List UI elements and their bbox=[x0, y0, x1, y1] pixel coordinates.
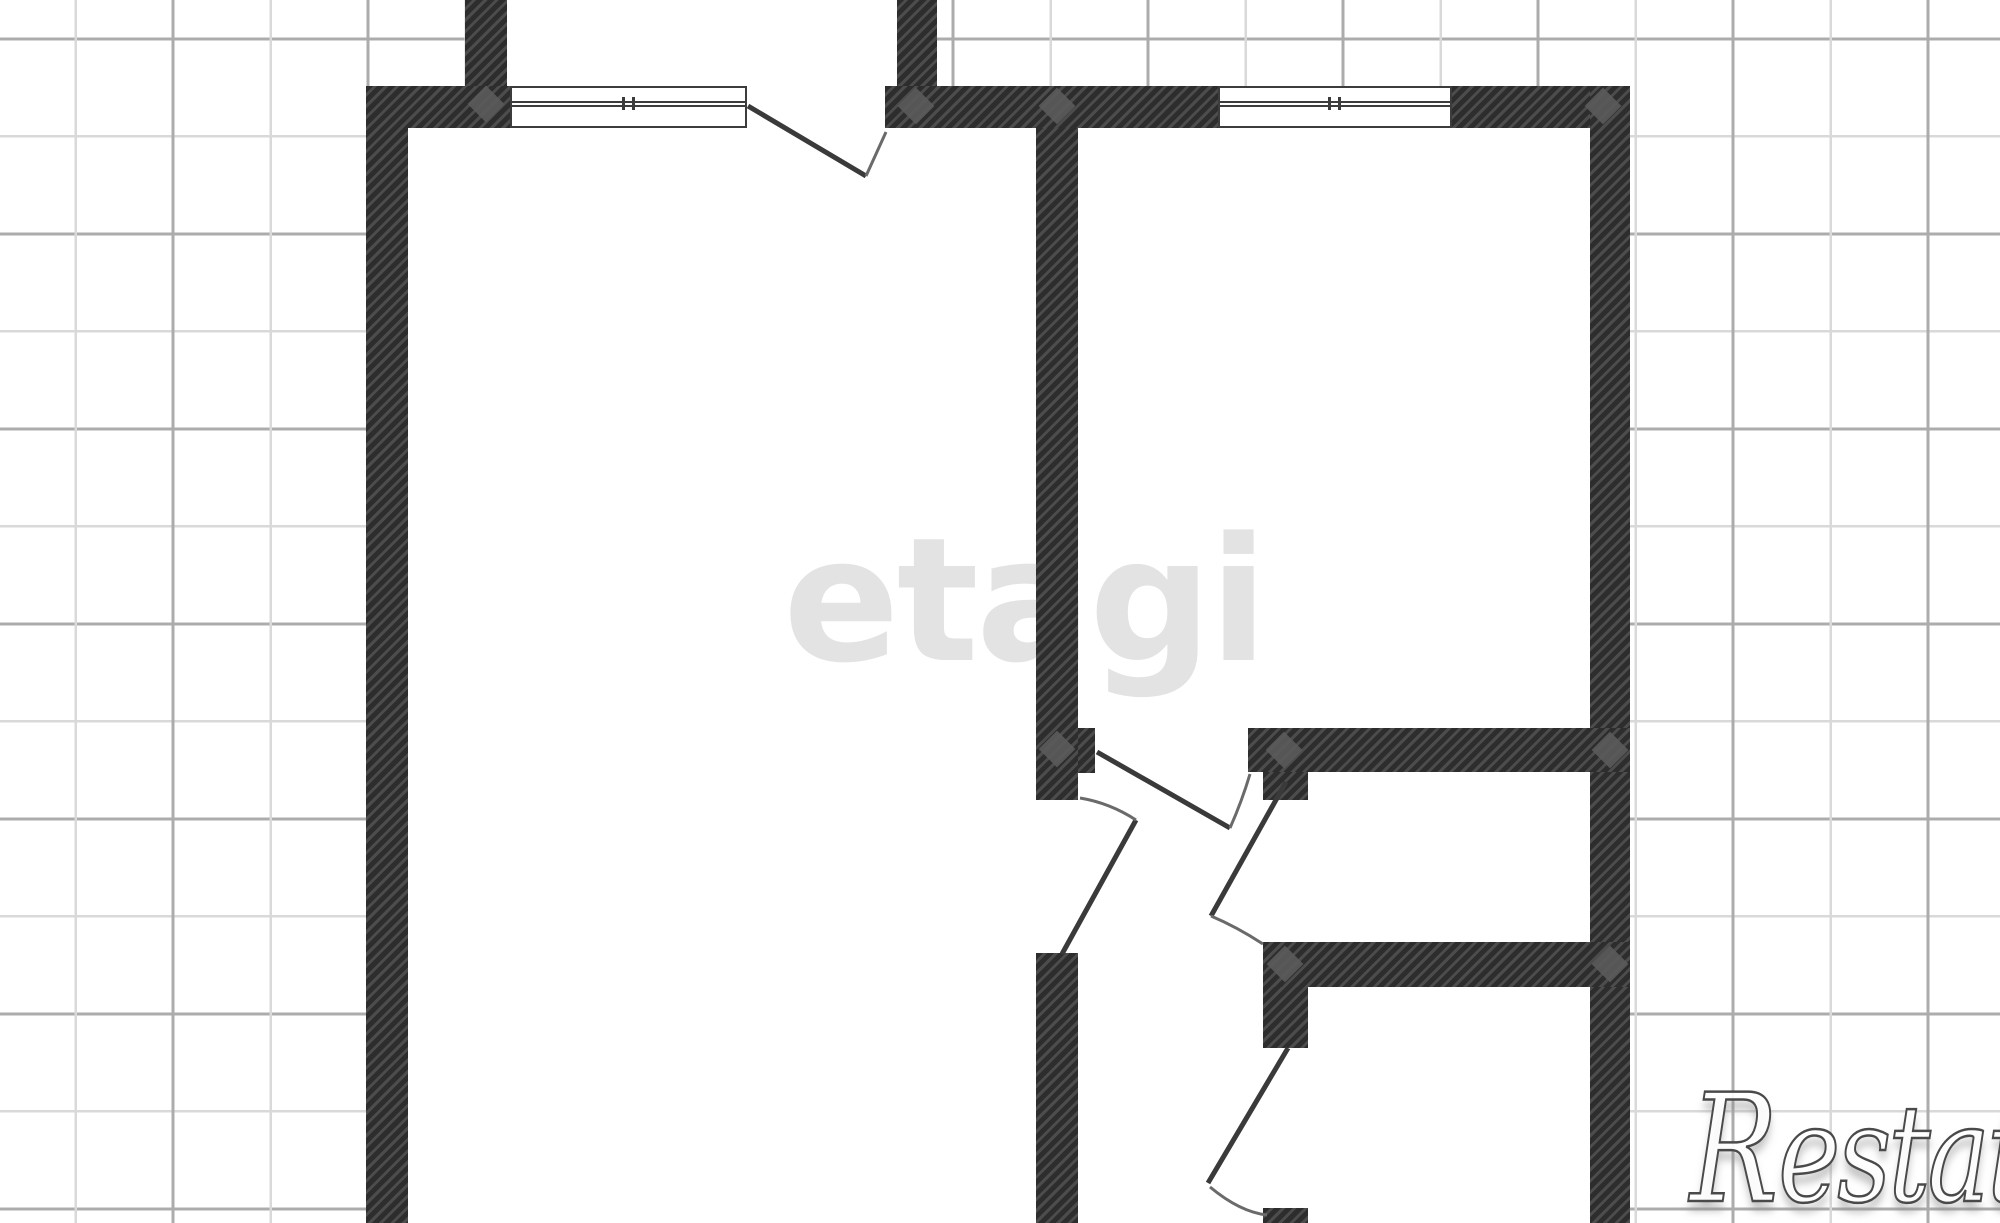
door-swings bbox=[0, 0, 2000, 1223]
bath-door-leaf bbox=[1208, 1048, 1288, 1183]
room2-door-leaf bbox=[1097, 752, 1230, 828]
wc-door-swing-arc bbox=[1211, 916, 1263, 944]
bath-door-swing-arc bbox=[1210, 1187, 1267, 1215]
entrance-door-leaf bbox=[748, 106, 866, 176]
entrance-door-swing-arc bbox=[866, 132, 886, 176]
wc-door-leaf bbox=[1211, 782, 1286, 916]
room2-door-swing-arc bbox=[1230, 774, 1250, 828]
restate-watermark-initial: R bbox=[1690, 1075, 1778, 1223]
restate-watermark-rest: estate bbox=[1778, 1087, 2000, 1222]
room1-door-leaf bbox=[1062, 820, 1136, 954]
room1-door-swing-arc bbox=[1080, 798, 1136, 820]
floorplan-canvas: etagi R estate bbox=[0, 0, 2000, 1223]
restate-watermark: R estate bbox=[1690, 1075, 2000, 1223]
